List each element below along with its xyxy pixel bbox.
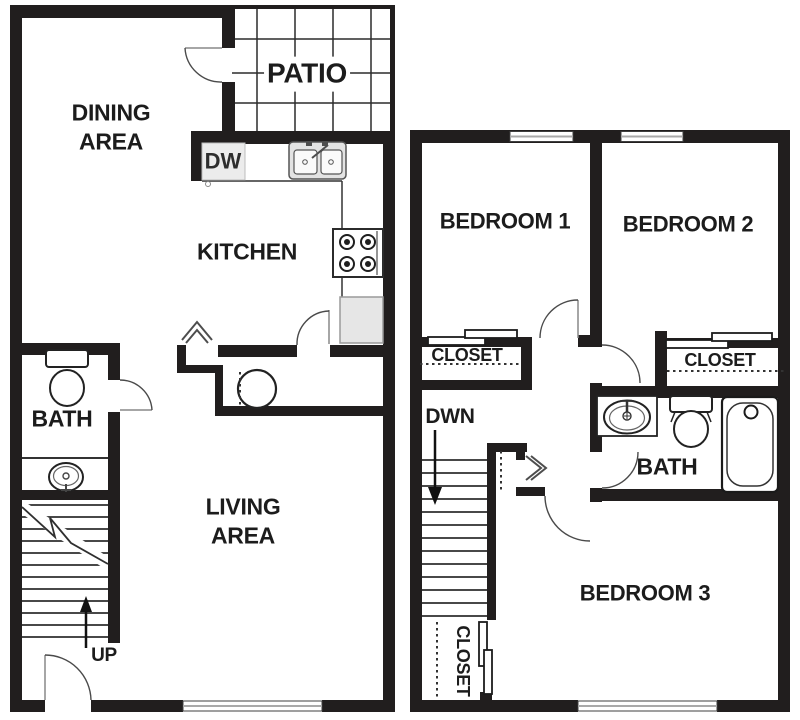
dining-area-label: DINING AREA bbox=[72, 98, 151, 155]
dining-area-label-line1: DINING bbox=[72, 98, 151, 127]
bedroom2-label: BEDROOM 2 bbox=[623, 210, 754, 237]
kitchen-label: KITCHEN bbox=[197, 238, 297, 267]
living-area-label-line2: AREA bbox=[206, 521, 281, 550]
down-arrow-icon bbox=[428, 430, 442, 505]
closet-label-bedroom3: CLOSET bbox=[452, 625, 474, 696]
bath-door-arc-second-floor bbox=[602, 452, 638, 488]
toilet-icon-first-floor bbox=[46, 350, 88, 406]
up-arrow-icon bbox=[80, 596, 92, 648]
closet-doors-bedroom3 bbox=[479, 622, 492, 694]
closet-label-bedroom2: CLOSET bbox=[684, 349, 755, 371]
water-heater-icon bbox=[238, 370, 276, 408]
bedroom1-label: BEDROOM 1 bbox=[440, 207, 571, 234]
bath-sink-icon-first-floor bbox=[49, 463, 83, 492]
window-living bbox=[183, 701, 322, 711]
window-bedroom3 bbox=[578, 701, 717, 711]
dining-area-label-line2: AREA bbox=[72, 127, 151, 156]
chevron-door-icon-first-floor bbox=[182, 322, 212, 343]
bathtub-icon bbox=[722, 397, 778, 492]
refrigerator-icon bbox=[340, 297, 383, 343]
window-bedroom1 bbox=[510, 132, 573, 142]
closet-label-bedroom1: CLOSET bbox=[431, 344, 502, 366]
stairs-second-floor bbox=[422, 460, 487, 616]
patio-door-arc bbox=[185, 48, 222, 82]
stairs-first-floor bbox=[22, 500, 108, 637]
kitchen-sink-icon bbox=[289, 141, 346, 179]
chevron-door-icon-second-floor bbox=[526, 456, 546, 480]
floor-plan: DINING AREA PATIO DW KITCHEN BATH UP LIV… bbox=[0, 0, 800, 720]
bath-label-first-floor: BATH bbox=[32, 405, 93, 434]
window-bedroom2 bbox=[621, 132, 683, 142]
bedroom2-door-arc bbox=[602, 345, 640, 383]
living-area-label: LIVING AREA bbox=[206, 492, 281, 549]
bedroom3-door-arc bbox=[545, 496, 590, 541]
living-area-label-line1: LIVING bbox=[206, 492, 281, 521]
bath-door-arc-first-floor bbox=[120, 380, 152, 410]
bath-label-second-floor: BATH bbox=[637, 453, 698, 482]
dishwasher-label: DW bbox=[205, 147, 242, 174]
kitchen-door-arc bbox=[297, 310, 329, 345]
bedroom1-door-arc bbox=[540, 300, 578, 338]
dwn-label: DWN bbox=[425, 404, 474, 430]
up-label: UP bbox=[91, 644, 117, 668]
vanity-sink-icon-second-floor bbox=[597, 396, 657, 436]
bedroom3-label: BEDROOM 3 bbox=[580, 579, 711, 606]
patio-label: PATIO bbox=[264, 57, 350, 92]
toilet-icon-second-floor bbox=[670, 396, 712, 447]
entry-door-arc bbox=[45, 655, 91, 700]
stove-icon bbox=[333, 229, 383, 277]
